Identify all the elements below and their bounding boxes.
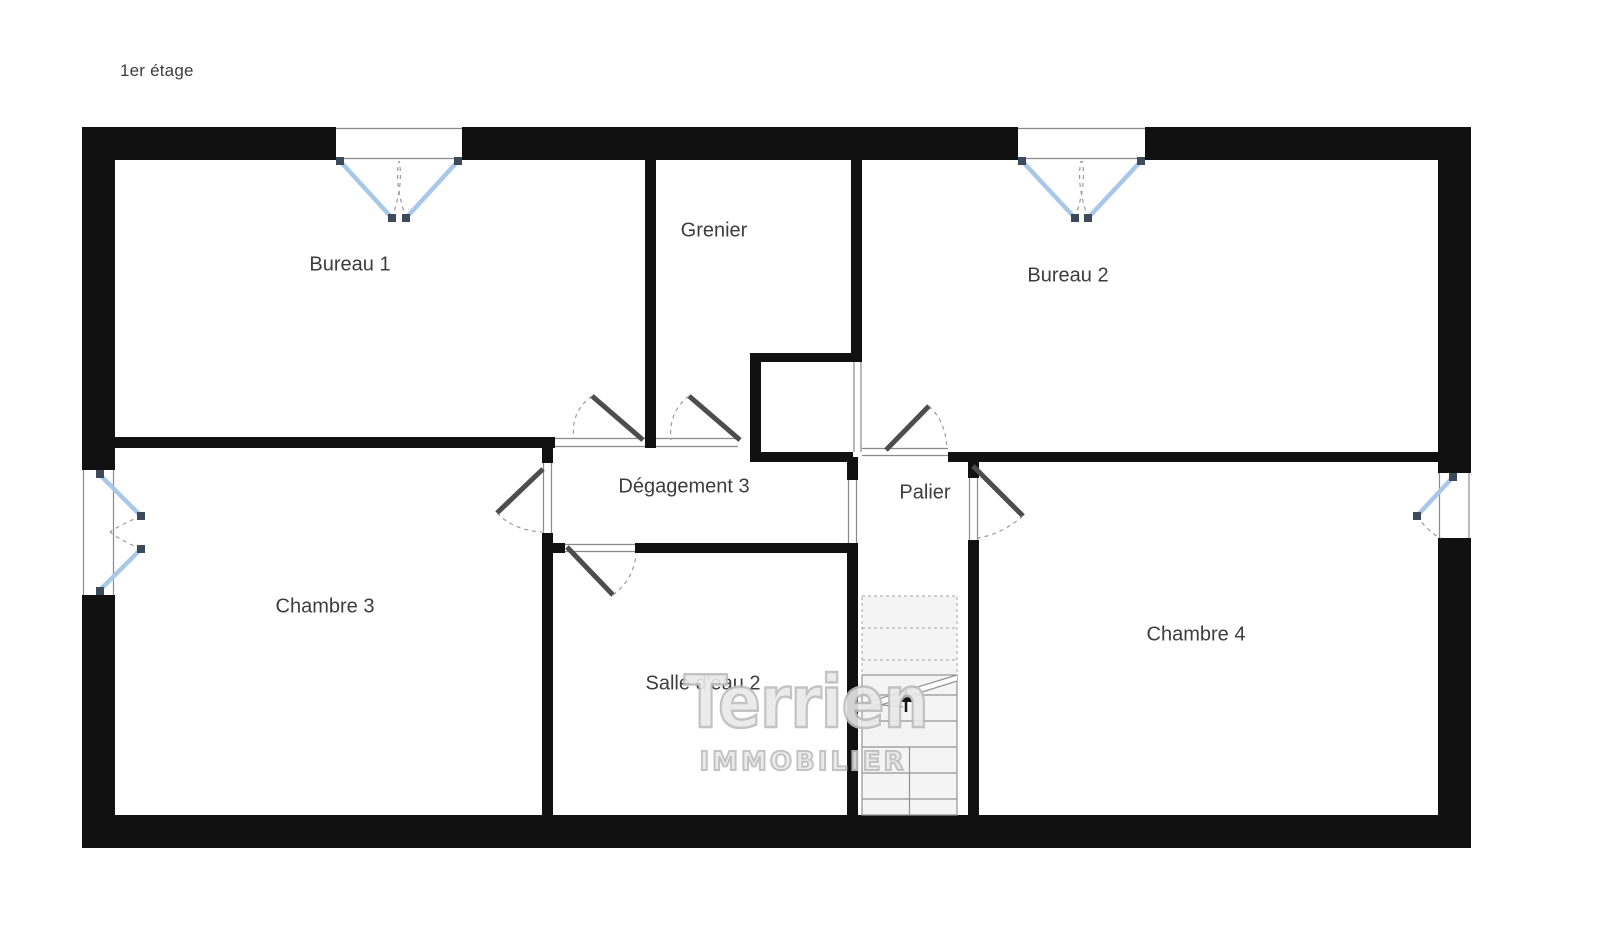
floorplan-drawing: [0, 0, 1600, 930]
door-salle-deau: [567, 547, 636, 595]
room-label-grenier: Grenier: [681, 220, 748, 243]
room-label-degagement3: Dégagement 3: [618, 476, 749, 499]
closet-walls: [750, 353, 862, 462]
window-right: [1413, 473, 1469, 538]
door-degagement-east: [671, 396, 740, 440]
window-top-left: [336, 129, 462, 223]
room-label-bureau1: Bureau 1: [309, 254, 390, 277]
exterior-walls: [82, 127, 1471, 848]
window-top-right: [1018, 129, 1145, 223]
stairs: [862, 596, 957, 815]
room-label-chambre4: Chambre 4: [1147, 624, 1246, 647]
door-palier-bureau2: [886, 406, 947, 450]
room-label-salle-deau2: Salle d'eau 2: [645, 673, 760, 696]
door-degagement-west: [573, 396, 643, 440]
floorplan-page: 1er étage: [0, 0, 1600, 930]
room-label-palier: Palier: [899, 482, 950, 505]
door-chambre4: [973, 466, 1023, 538]
room-label-bureau2: Bureau 2: [1027, 265, 1108, 288]
room-label-chambre3: Chambre 3: [276, 596, 375, 619]
door-chambre3: [497, 469, 543, 532]
window-left: [84, 470, 146, 595]
